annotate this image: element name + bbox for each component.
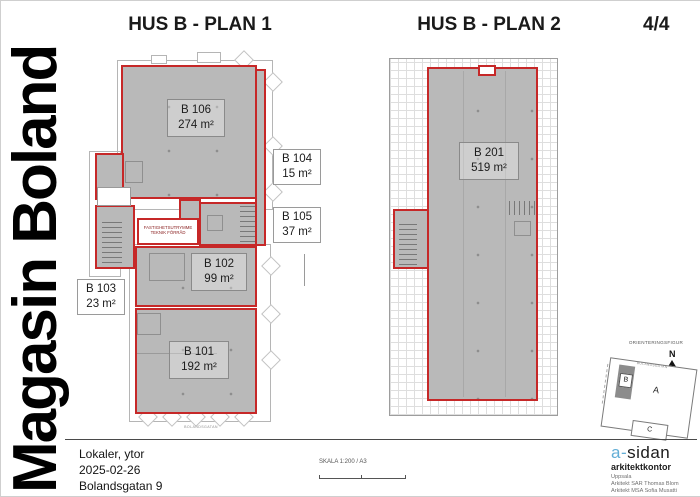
scale-label: SKALA 1:200 / A3 [319, 459, 367, 465]
elevator-b105 [207, 215, 223, 231]
stairs-b201-upper [509, 201, 535, 215]
building-b-label: B [618, 373, 633, 389]
stairs-b105 [240, 206, 255, 242]
firm-type: arkitektkontor [611, 462, 679, 472]
architect-firm-block: a-sidan arkitektkontor Uppsala Arkitekt … [611, 444, 679, 494]
scale-bar [319, 478, 405, 479]
room-id: B 102 [196, 257, 242, 272]
partition-b101-2 [137, 313, 161, 335]
room-id: B 106 [172, 103, 220, 118]
plan2-title: HUS B - PLAN 2 [415, 14, 563, 36]
vertical-brand-title: Magasin Boland [5, 5, 67, 493]
firm-logo-prefix: a- [611, 443, 627, 462]
stairs-b103 [102, 219, 122, 263]
scale-tick [361, 475, 362, 479]
room-id: B 201 [464, 146, 514, 161]
stairs-b201 [399, 223, 417, 265]
site-street-left-line [602, 364, 610, 404]
room-id: B 103 [82, 282, 120, 297]
room-id: B 105 [278, 210, 316, 225]
drawing-sheet: Magasin Boland HUS B - PLAN 1 HUS B - PL… [0, 0, 700, 497]
b201-centerline-2 [505, 71, 506, 397]
doc-type: Lokaler, ytor [79, 446, 162, 462]
orientation-figure-label: ORIENTERINGSFIGUR [619, 340, 693, 345]
scale-tick [405, 475, 406, 479]
room-area: 192 m² [174, 360, 224, 375]
building-c-label: C [631, 420, 669, 441]
b201-centerline-1 [463, 71, 464, 397]
street-label-bottom: BOLANDSGATAN [151, 425, 251, 429]
site-street-label: BOLANDSGATAN [636, 361, 667, 369]
firm-logo: a-sidan [611, 444, 679, 461]
elevator-b201 [514, 221, 531, 236]
room-area: 274 m² [172, 118, 220, 133]
firm-details: Uppsala Arkitekt SAR Thomas Blom Arkitek… [611, 474, 679, 494]
room-label-b102: B 102 99 m² [191, 253, 247, 291]
firm-city: Uppsala [611, 474, 679, 481]
room-label-b104: B 104 15 m² [273, 149, 321, 185]
room-label-b105: B 105 37 m² [273, 207, 321, 243]
technical-room-line2: TEKNIK FÖRRÅD [139, 230, 197, 235]
technical-room-box: FASTIGHETSUTRYMME TEKNIK FÖRRÅD [137, 218, 199, 245]
room-area: 37 m² [278, 225, 316, 240]
plan2-top-notch [478, 65, 496, 76]
partition-b106 [125, 161, 143, 183]
doc-address: Bolandsgatan 9 [79, 478, 162, 494]
room-id: B 101 [174, 345, 224, 360]
room-id: B 104 [278, 152, 316, 167]
room-area: 519 m² [464, 161, 514, 176]
north-label: N [669, 349, 676, 359]
page-number: 4/4 [643, 14, 669, 36]
room-area: 99 m² [196, 272, 242, 287]
room-label-b101: B 101 192 m² [169, 341, 229, 379]
room-label-b201: B 201 519 m² [459, 142, 519, 180]
site-plan-figure: BOLANDSGATAN B A C [601, 357, 698, 439]
room-area: 23 m² [82, 297, 120, 312]
storage-room [97, 187, 131, 206]
building-a-label: A [653, 385, 660, 396]
room-area: 15 m² [278, 167, 316, 182]
room-label-b106: B 106 274 m² [167, 99, 225, 137]
partition-b102 [149, 253, 185, 281]
room-label-b103: B 103 23 m² [77, 279, 125, 315]
firm-architect-1: Arkitekt SAR Thomas Blom [611, 481, 679, 488]
doc-date: 2025-02-26 [79, 462, 162, 478]
street-label-vertical [304, 254, 305, 286]
plan1-title: HUS B - PLAN 1 [119, 14, 281, 36]
document-info: Lokaler, ytor 2025-02-26 Bolandsgatan 9 [79, 446, 162, 494]
dormer-mark [151, 55, 167, 64]
footer-divider [65, 439, 697, 440]
firm-logo-suffix: sidan [627, 443, 670, 462]
firm-architect-2: Arkitekt MSA Sofia Musatti [611, 488, 679, 495]
scale-tick [319, 475, 320, 479]
dormer-mark [197, 52, 221, 63]
